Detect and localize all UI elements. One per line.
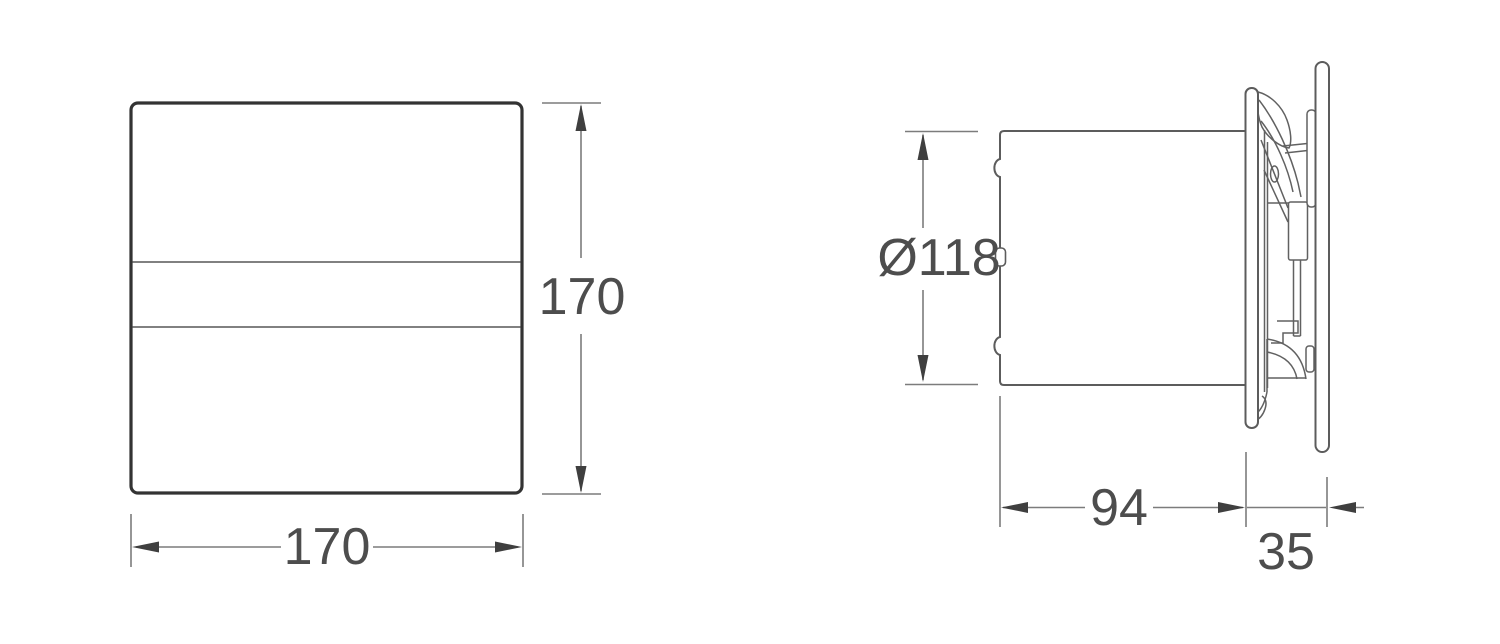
- fan-internals: [1255, 92, 1316, 421]
- front-width-dim-label: 170: [284, 518, 371, 576]
- dim-arrow-left: [1001, 502, 1028, 513]
- dim-arrow-up: [918, 133, 929, 160]
- mounting-plate: [1246, 88, 1259, 428]
- fan-dimension-drawing: 170 170: [0, 0, 1500, 644]
- side-view: Ø118 94 35: [877, 62, 1364, 581]
- dim-arrow-down: [576, 466, 587, 493]
- front-cover-panel: [1316, 62, 1330, 452]
- dim-arrow-down: [918, 355, 929, 382]
- dim-arrow-right: [495, 542, 522, 553]
- dim-arrow-up: [576, 104, 587, 131]
- depth-dimensions: 94 35: [1000, 396, 1364, 581]
- cover-depth-dim-label: 35: [1257, 523, 1315, 581]
- duct-body-outline: [994, 131, 1246, 385]
- front-height-dimension: 170: [539, 103, 626, 494]
- dim-arrow-left: [132, 542, 159, 553]
- front-height-dim-label: 170: [539, 268, 626, 326]
- technical-drawing-canvas: 170 170: [0, 0, 1500, 644]
- dim-arrow-right: [1218, 502, 1245, 513]
- dim-arrow-left-outside: [1329, 502, 1356, 513]
- front-panel-outline: [131, 103, 522, 493]
- diameter-dim-label: Ø118: [877, 229, 1000, 287]
- body-depth-dim-label: 94: [1090, 479, 1148, 537]
- diameter-dimension: Ø118: [877, 132, 1000, 385]
- front-view: 170 170: [131, 103, 625, 576]
- front-width-dimension: 170: [131, 514, 523, 576]
